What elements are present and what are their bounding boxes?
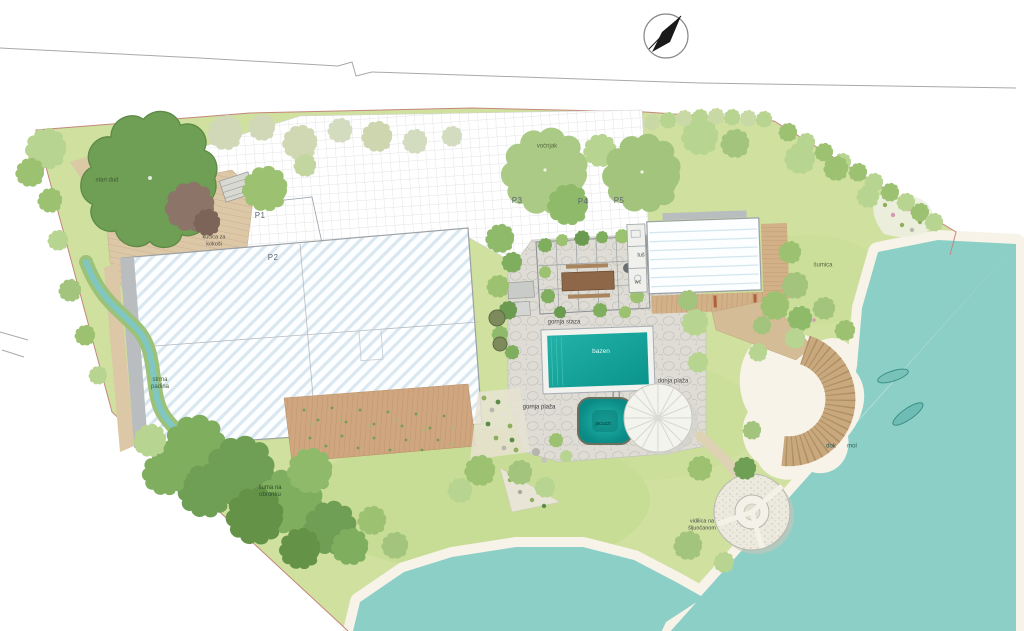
site-plan-page: stari dud kućica za kokoši P1 P2 P3 P4 P… <box>0 0 1024 631</box>
north-arrow-compass <box>644 14 688 58</box>
site-plan-drawing <box>0 0 1024 631</box>
